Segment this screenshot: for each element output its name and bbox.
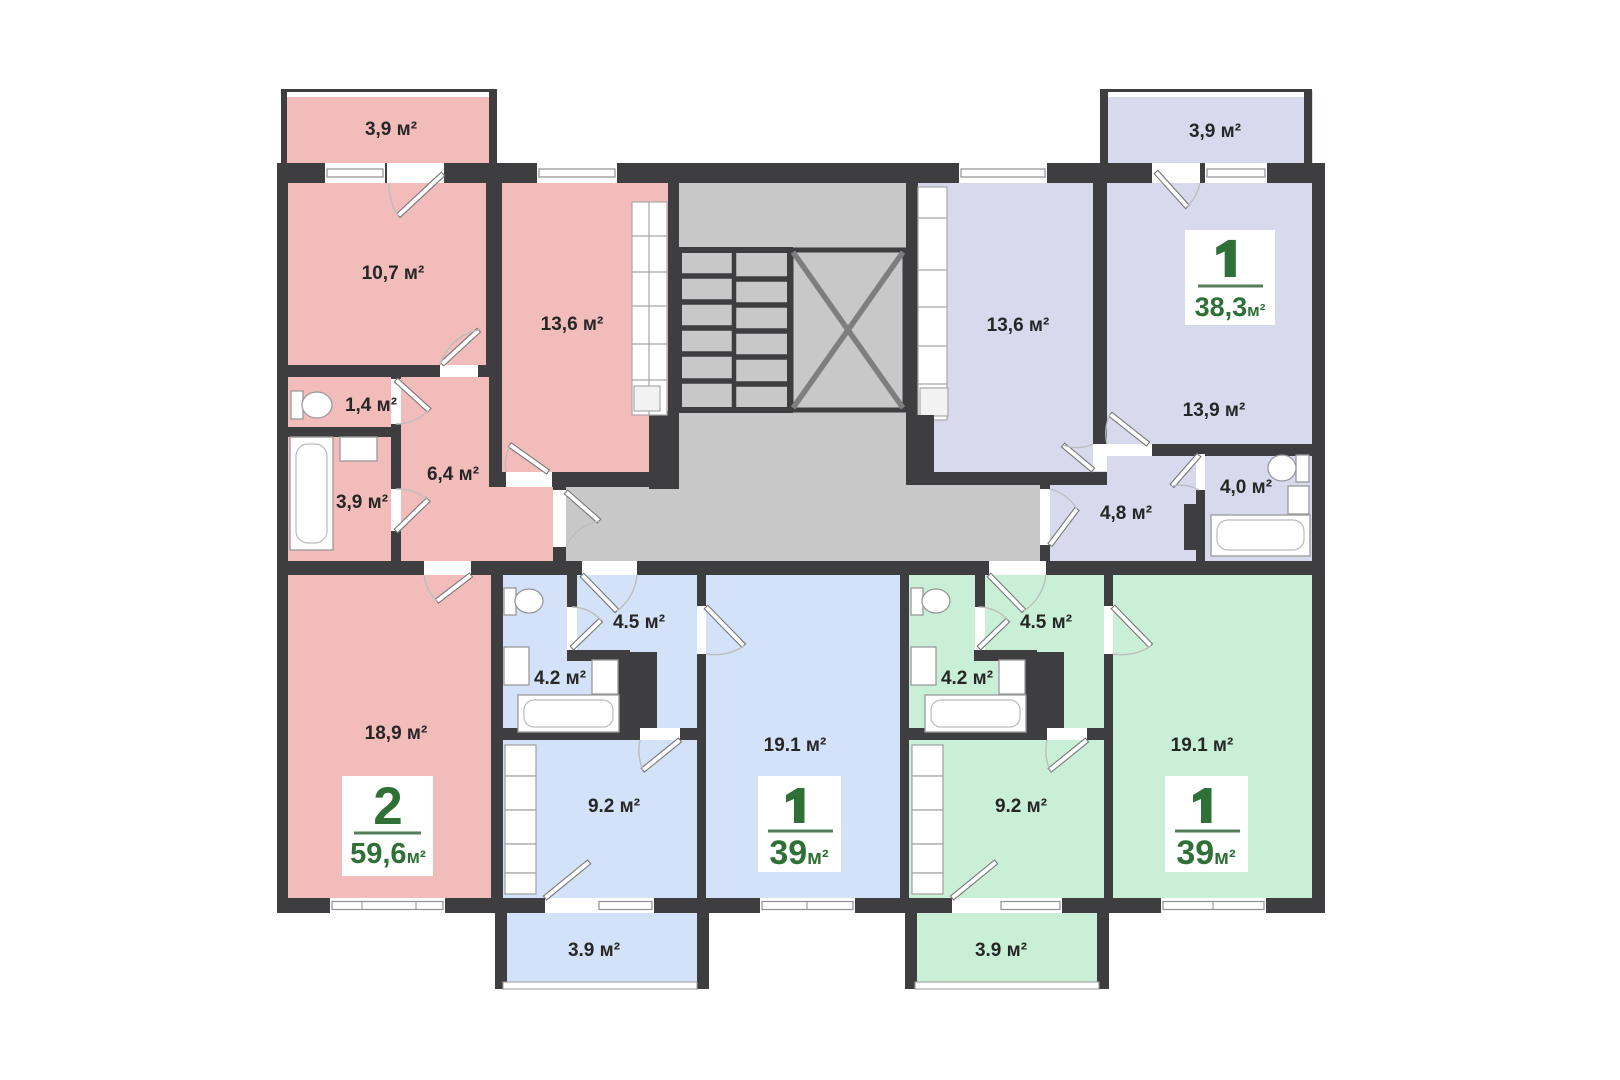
svg-text:4.5 м²: 4.5 м² [1020,612,1072,633]
svg-text:19.1 м²: 19.1 м² [764,735,827,756]
svg-text:13,9 м²: 13,9 м² [1183,400,1246,421]
svg-text:4.5 м²: 4.5 м² [613,612,665,633]
svg-text:13,6 м²: 13,6 м² [541,314,604,335]
svg-text:1,4 м²: 1,4 м² [345,395,397,416]
svg-text:4,8 м²: 4,8 м² [1100,503,1152,524]
svg-text:10,7 м²: 10,7 м² [362,263,425,284]
svg-text:3.9 м²: 3.9 м² [568,940,620,961]
svg-text:3,9 м²: 3,9 м² [1189,121,1241,142]
svg-text:9.2 м²: 9.2 м² [588,796,640,817]
svg-text:9.2 м²: 9.2 м² [995,796,1047,817]
svg-text:4.2 м²: 4.2 м² [534,668,586,689]
svg-text:3,9 м²: 3,9 м² [365,119,417,140]
svg-text:13,6 м²: 13,6 м² [987,315,1050,336]
svg-text:3,9 м²: 3,9 м² [336,492,388,513]
svg-text:4,0 м²: 4,0 м² [1220,477,1272,498]
svg-text:3.9 м²: 3.9 м² [975,940,1027,961]
svg-text:2: 2 [373,777,402,836]
svg-text:19.1 м²: 19.1 м² [1171,735,1234,756]
svg-text:6,4 м²: 6,4 м² [427,464,479,485]
svg-text:4.2 м²: 4.2 м² [941,668,993,689]
svg-text:18,9 м²: 18,9 м² [365,723,428,744]
